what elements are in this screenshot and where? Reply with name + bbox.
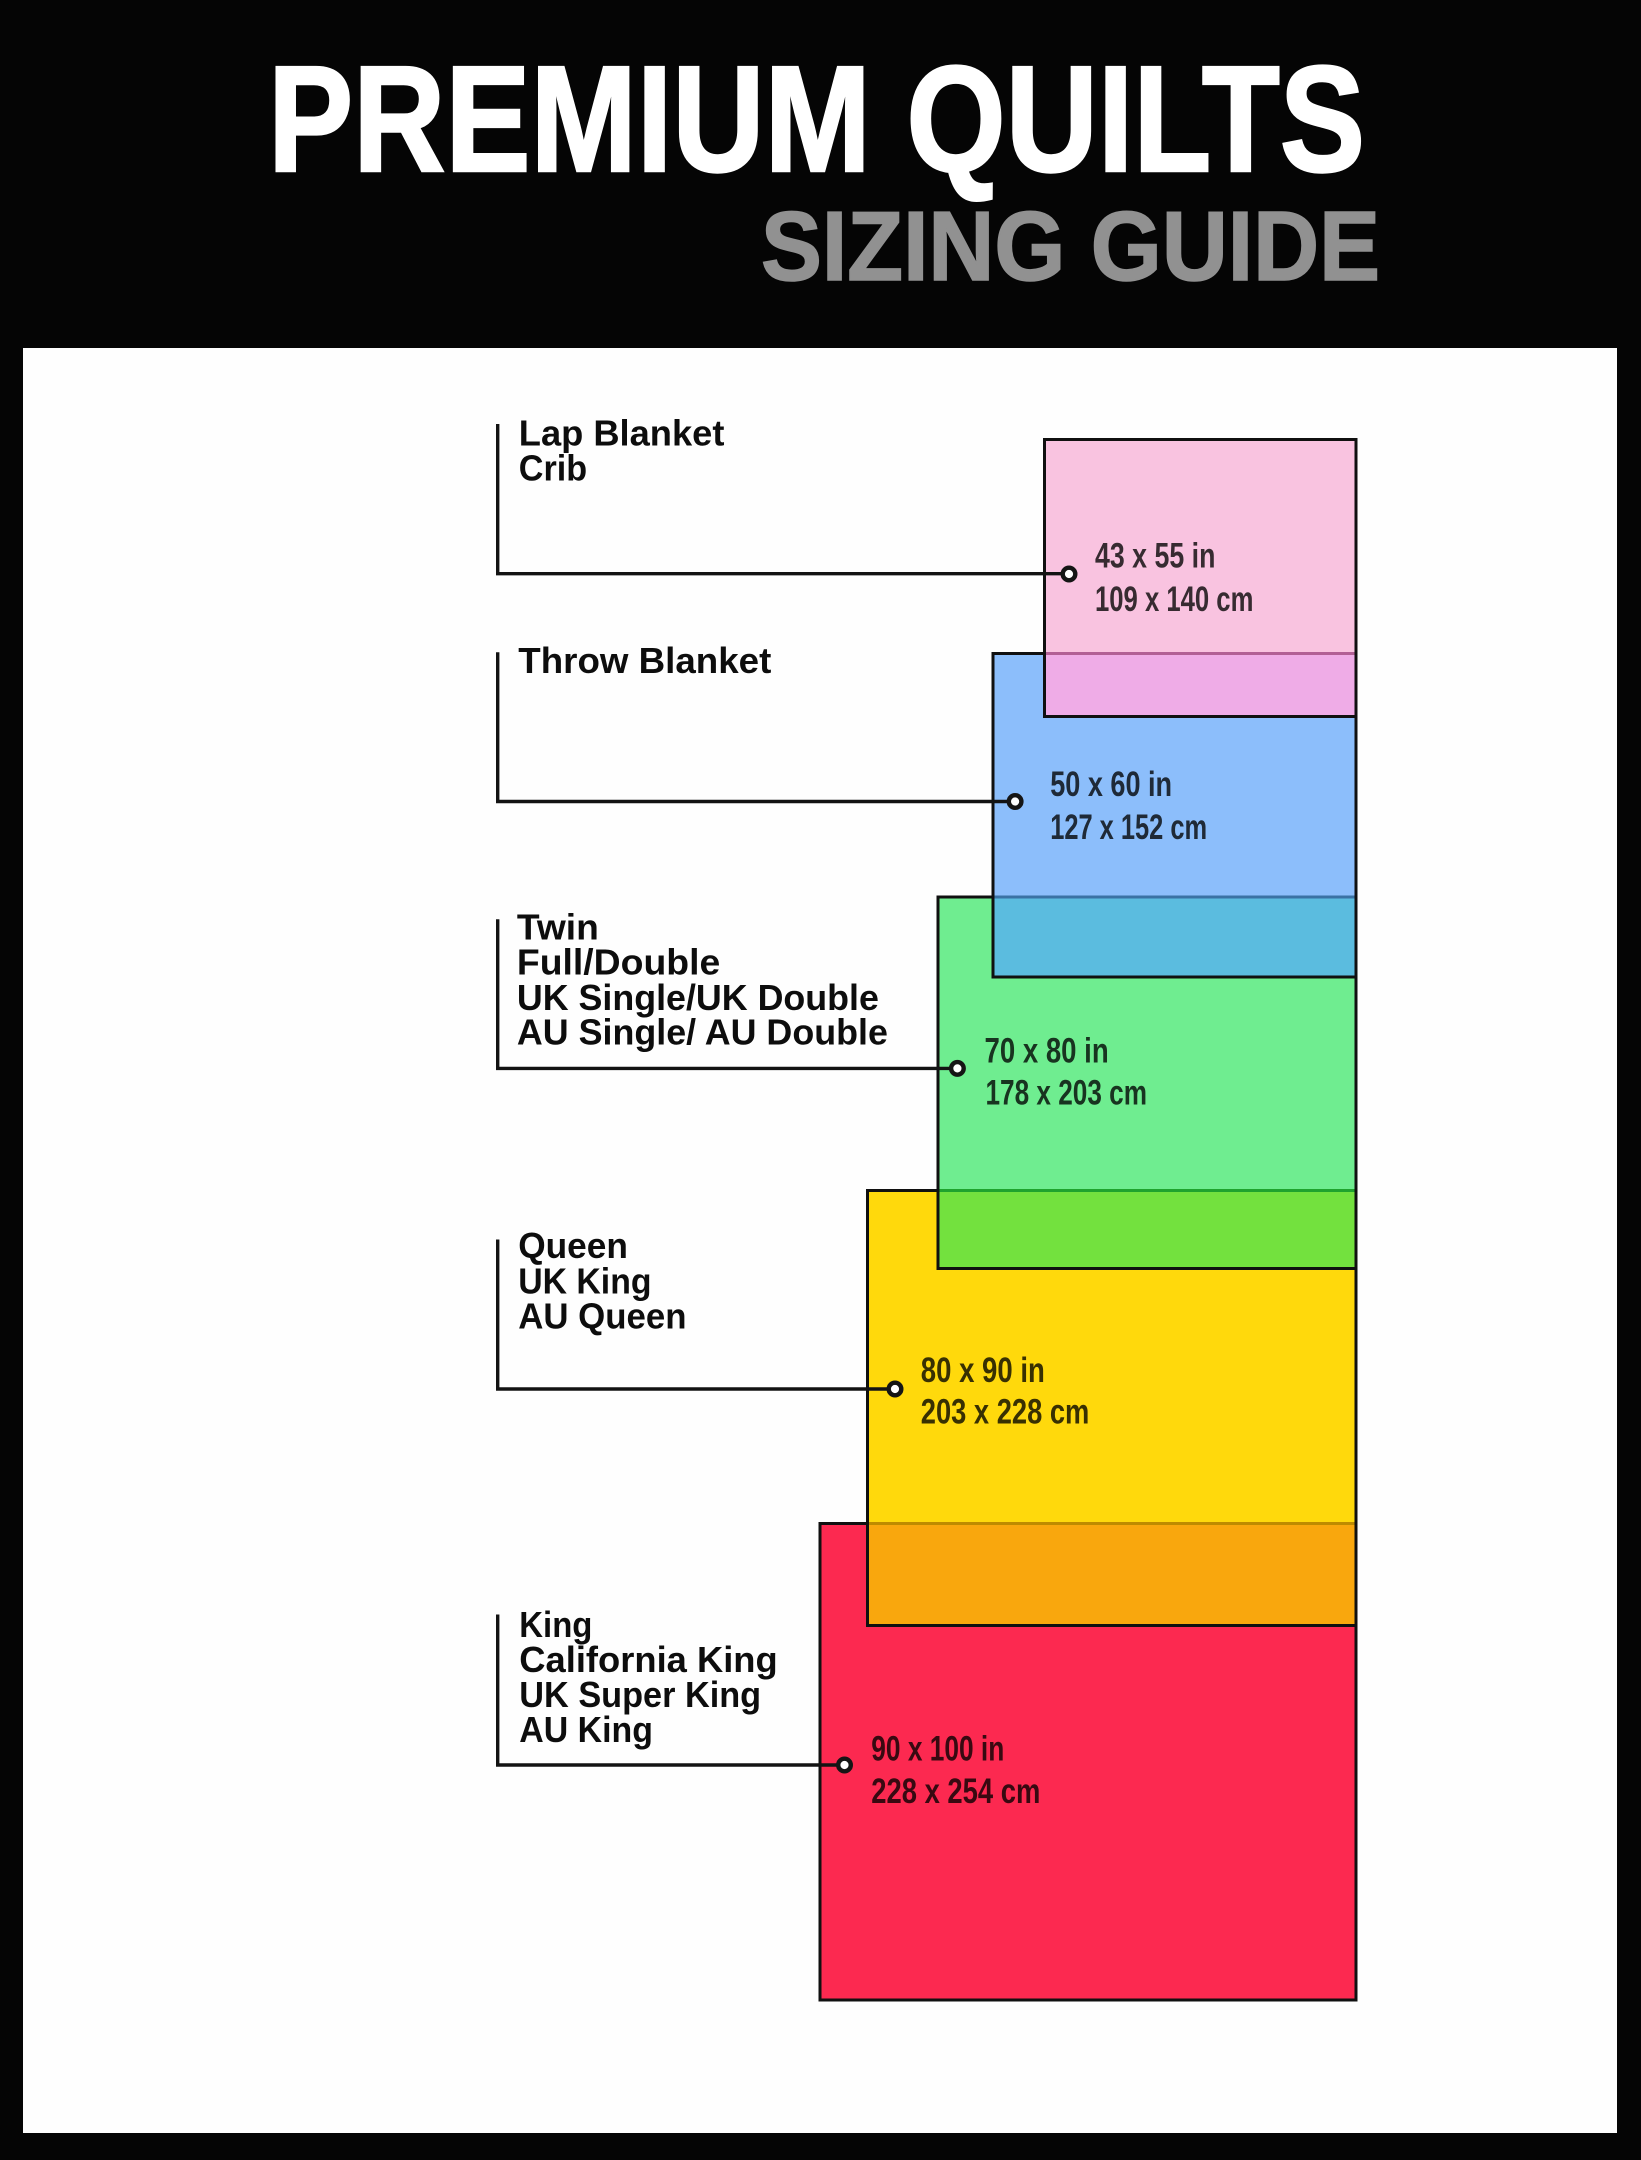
svg-text:AU Queen: AU Queen xyxy=(518,1296,686,1337)
svg-text:43 x 55 in: 43 x 55 in xyxy=(1095,536,1215,576)
svg-text:228 x 254 cm: 228 x 254 cm xyxy=(871,1771,1040,1811)
svg-text:SIZING GUIDE: SIZING GUIDE xyxy=(761,191,1380,301)
svg-text:Throw Blanket: Throw Blanket xyxy=(518,640,771,681)
svg-text:80 x 90 in: 80 x 90 in xyxy=(921,1350,1045,1390)
svg-text:50 x 60 in: 50 x 60 in xyxy=(1050,764,1172,804)
svg-text:178 x 203 cm: 178 x 203 cm xyxy=(986,1073,1148,1113)
svg-text:109 x 140 cm: 109 x 140 cm xyxy=(1095,579,1253,619)
svg-text:127 x 152 cm: 127 x 152 cm xyxy=(1050,807,1207,847)
svg-text:Crib: Crib xyxy=(519,448,587,489)
svg-text:PREMIUM QUILTS: PREMIUM QUILTS xyxy=(268,34,1365,203)
svg-text:203 x 228 cm: 203 x 228 cm xyxy=(921,1391,1090,1431)
svg-text:AU King: AU King xyxy=(519,1709,653,1750)
svg-text:AU Single/ AU Double: AU Single/ AU Double xyxy=(517,1012,888,1053)
svg-text:90 x 100 in: 90 x 100 in xyxy=(871,1729,1004,1769)
svg-text:70 x 80 in: 70 x 80 in xyxy=(985,1031,1109,1071)
